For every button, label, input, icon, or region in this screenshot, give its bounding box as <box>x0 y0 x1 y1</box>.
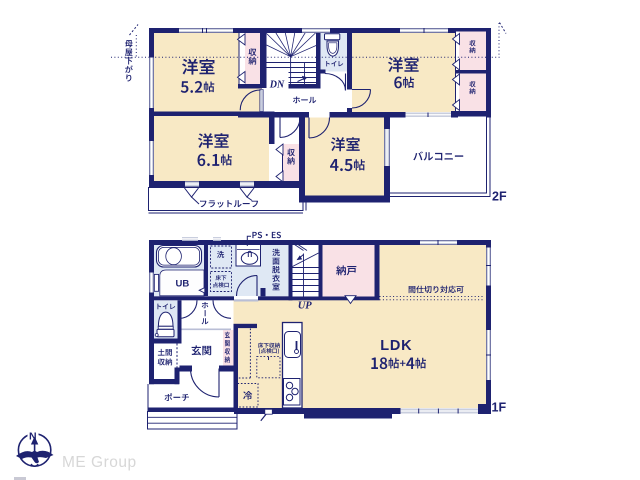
svg-text:UB: UB <box>176 279 190 290</box>
svg-text:2F: 2F <box>492 189 507 203</box>
svg-text:N: N <box>29 431 37 443</box>
svg-text:LDK: LDK <box>380 338 412 354</box>
svg-text:1F: 1F <box>492 401 507 415</box>
svg-text:ME Group: ME Group <box>62 454 137 471</box>
svg-text:UP: UP <box>298 301 313 312</box>
svg-text:DN: DN <box>269 79 285 90</box>
